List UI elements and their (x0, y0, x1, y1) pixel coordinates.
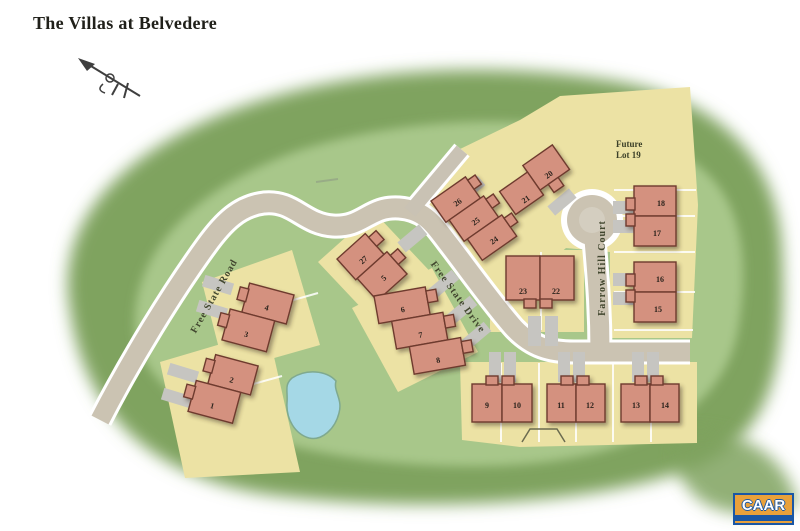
svg-text:12: 12 (586, 401, 594, 410)
svg-text:15: 15 (654, 305, 662, 314)
svg-text:10: 10 (513, 401, 521, 410)
future-lot-label: Future Lot 19 (616, 139, 642, 160)
svg-text:Lot 19: Lot 19 (616, 150, 641, 160)
site-plan-map: 2 1 4 3 27 5 6 7 8 9 10 (0, 0, 800, 531)
caar-logo: CAAR (733, 493, 794, 525)
north-arrow-icon (78, 58, 140, 98)
svg-text:11: 11 (557, 401, 565, 410)
label-farrow-hill-court: Farrow Hill Court (597, 220, 608, 316)
svg-text:16: 16 (656, 275, 664, 284)
building-lots-22-23: 23 22 (506, 256, 574, 308)
pond (287, 372, 340, 439)
map-canvas: 2 1 4 3 27 5 6 7 8 9 10 (0, 0, 800, 531)
svg-text:Future: Future (616, 139, 642, 149)
svg-text:14: 14 (661, 401, 669, 410)
building-lots-17-18: 18 17 (626, 186, 676, 246)
svg-text:13: 13 (632, 401, 640, 410)
page-title: The Villas at Belvedere (33, 13, 217, 34)
svg-text:9: 9 (485, 401, 489, 410)
svg-text:18: 18 (657, 199, 665, 208)
caar-logo-band (735, 515, 792, 521)
building-lots-15-16: 16 15 (626, 262, 676, 322)
svg-text:22: 22 (552, 287, 560, 296)
svg-text:17: 17 (653, 229, 661, 238)
svg-text:23: 23 (519, 287, 527, 296)
caar-logo-text: CAAR (735, 495, 792, 515)
